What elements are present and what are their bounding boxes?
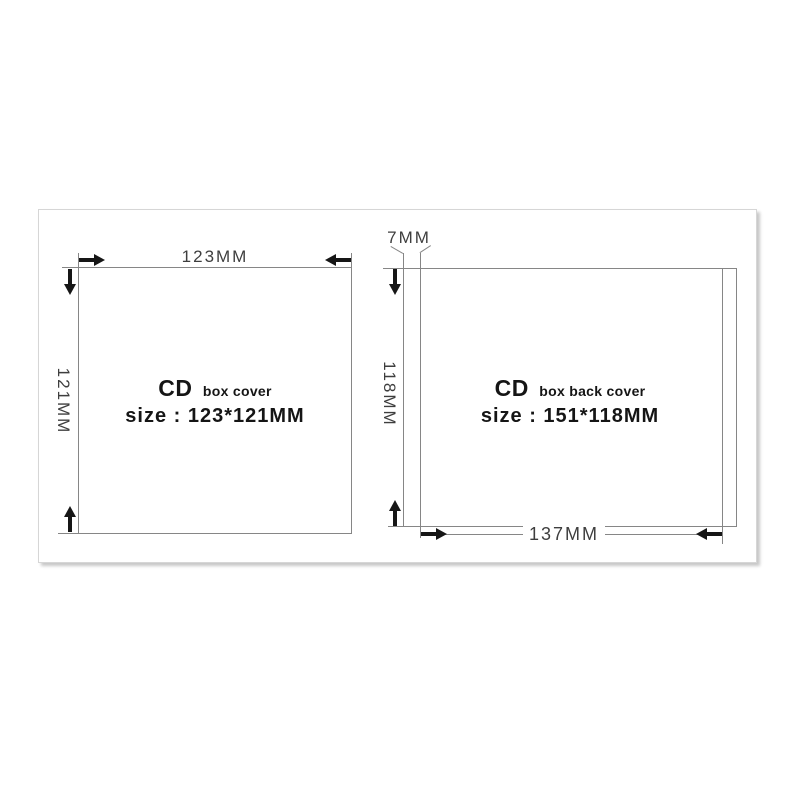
cover-title-sub: box cover (203, 383, 272, 399)
cover-width-label: 123MM (78, 247, 352, 267)
back-cover-height-label: 118MM (379, 356, 399, 432)
back-cover-text-block: CD box back cover size : 151*118MM (403, 375, 737, 428)
diagram-canvas: 123MM 121MM CD box cover size : 123*121M… (0, 0, 800, 800)
back-cover-title: CD box back cover (403, 375, 737, 405)
cover-text-block: CD box cover size : 123*121MM (78, 375, 352, 428)
cover-title: CD box cover (78, 375, 352, 405)
cover-height-arrow-down-icon (64, 269, 76, 295)
cover-top-extension-line (62, 267, 78, 268)
spine-label: 7MM (373, 228, 445, 248)
back-cover-left-extension-line (403, 253, 404, 268)
back-cover-bottom-extension-line (388, 526, 403, 527)
cover-size-text: size : 123*121MM (78, 405, 352, 428)
back-cover-size-text: size : 151*118MM (403, 405, 737, 428)
cover-height-label: 121MM (53, 363, 73, 439)
back-cover-title-sub: box back cover (539, 383, 645, 399)
back-cover-width-arrow-left-icon (696, 528, 722, 540)
back-cover-inner-width-label: 137MM (523, 524, 605, 544)
cover-width-arrow-left-icon (325, 254, 351, 266)
cover-title-main: CD (158, 375, 192, 401)
back-cover-title-main: CD (495, 375, 529, 401)
cover-bottom-extension-line (58, 533, 78, 534)
cover-height-arrow-up-icon (64, 506, 76, 532)
cover-width-arrow-right-icon (79, 254, 105, 266)
back-cover-height-arrow-down-icon (389, 269, 401, 295)
back-cover-width-arrow-right-icon (421, 528, 447, 540)
back-cover-height-arrow-up-icon (389, 500, 401, 526)
diagram-panel: 123MM 121MM CD box cover size : 123*121M… (38, 209, 757, 563)
